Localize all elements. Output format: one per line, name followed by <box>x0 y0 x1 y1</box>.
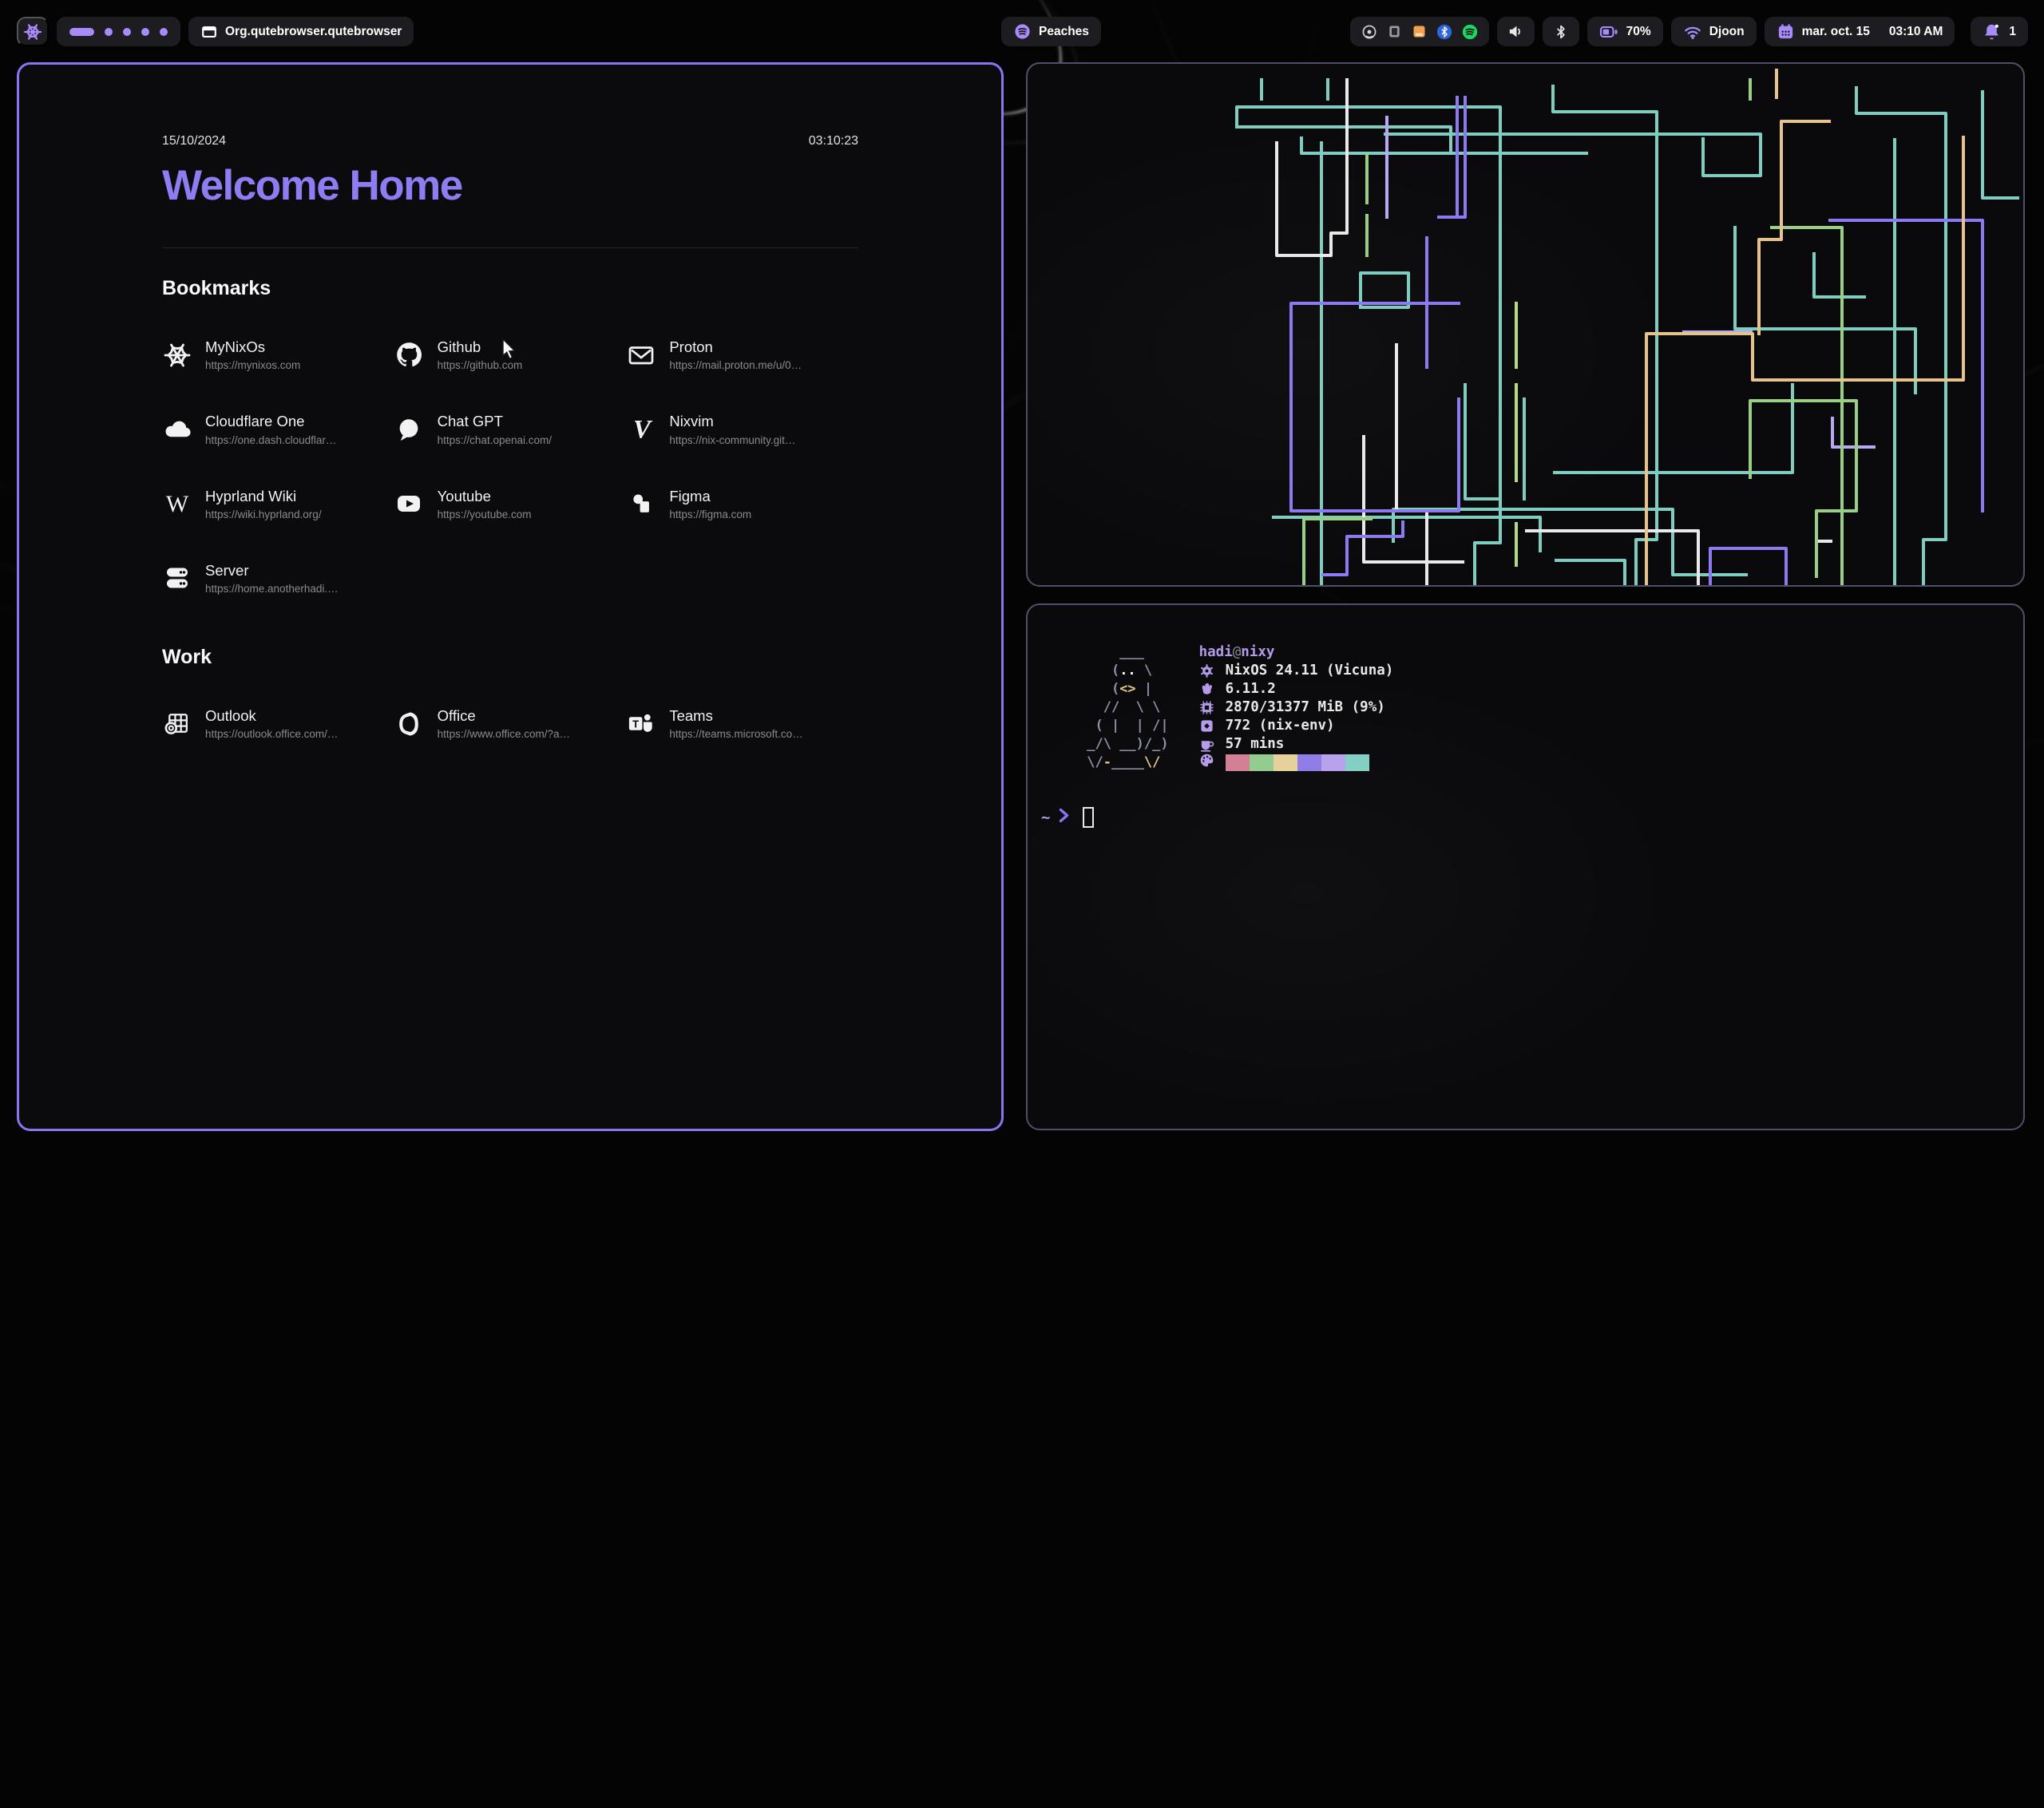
mail-icon <box>626 341 656 370</box>
bookmark-item-chat-gpt[interactable]: Chat GPT https://chat.openai.com/ <box>394 413 627 445</box>
shell-prompt[interactable]: ~ <box>1041 807 2023 828</box>
workspace-indicator-1[interactable] <box>69 28 94 36</box>
server-icon <box>162 563 192 593</box>
color-swatches <box>1226 754 1369 771</box>
palette-swatch <box>1250 754 1274 771</box>
pipe-segment <box>1814 254 1864 297</box>
bookmark-name: Figma <box>669 488 751 504</box>
spotify-tray-icon[interactable] <box>1461 23 1479 41</box>
bookmark-name: Chat GPT <box>438 413 552 429</box>
pipe-segment <box>1856 88 1946 585</box>
section-title-bookmarks: Bookmarks <box>162 277 858 300</box>
media-track-label: Peaches <box>1039 25 1089 39</box>
bookmark-item-office[interactable]: Office https://www.office.com/?a… <box>394 707 627 740</box>
bookmark-url: https://mynixos.com <box>205 359 300 371</box>
pipe-segment <box>1735 227 1915 393</box>
bookmark-name: Office <box>438 707 570 724</box>
fastfetch-output: ___ (.. \ (<> | // \ \ ( | | /| _/\ __)/… <box>1028 605 2023 772</box>
pipe-segment <box>1439 97 1465 217</box>
music-disc-icon <box>1013 22 1032 41</box>
clock-date: mar. oct. 15 <box>1802 25 1870 39</box>
mouse-cursor <box>501 338 521 365</box>
svg-text:W: W <box>165 491 188 517</box>
fastfetch-info: hadi@nixy NixOS 24.11 (Vicuna)6.11.22870… <box>1199 643 1394 772</box>
bookmark-url: https://mail.proton.me/u/0… <box>669 359 802 371</box>
bookmark-item-proton[interactable]: Proton https://mail.proton.me/u/0… <box>626 338 858 371</box>
palette-swatch <box>1274 754 1297 771</box>
bookmark-url: https://teams.microsoft.co… <box>669 728 802 740</box>
nix-icon <box>162 341 192 370</box>
nix-snowflake-icon <box>23 22 42 42</box>
bookmark-name: Teams <box>669 707 802 724</box>
battery-widget[interactable]: 70% <box>1587 17 1663 46</box>
bookmark-name: Proton <box>669 338 802 355</box>
launcher-button[interactable] <box>17 17 49 46</box>
bookmark-url: https://home.anotherhadi.… <box>205 583 339 595</box>
fastfetch-rows: NixOS 24.11 (Vicuna)6.11.22870/31377 MiB… <box>1199 662 1394 754</box>
app-indicator-tray-icon[interactable] <box>1386 23 1403 40</box>
bookmark-url: https://figma.com <box>669 508 751 520</box>
bluetooth-badge-tray-icon[interactable] <box>1436 23 1453 41</box>
wikipedia-icon: W <box>162 489 192 518</box>
pipes-screensaver-art <box>1028 64 2023 585</box>
bookmark-url: https://one.dash.cloudflar… <box>205 434 336 446</box>
pipe-segment <box>1830 220 1983 511</box>
chat-icon <box>394 416 424 443</box>
os-icon <box>1199 663 1214 678</box>
terminal-cursor[interactable] <box>1083 807 1094 828</box>
kernel-icon <box>1199 682 1214 697</box>
section-title-work: Work <box>162 646 858 669</box>
tux-ascii-art: ___ (.. \ (<> | // \ \ ( | | /| _/\ __)/… <box>1079 643 1169 772</box>
svg-text:V: V <box>633 415 653 444</box>
startpage-date: 15/10/2024 <box>162 134 226 148</box>
bookmark-url: https://www.office.com/?a… <box>438 728 570 740</box>
top-bar-left: Org.qutebrowser.qutebrowser <box>17 17 414 46</box>
pipes-terminal-window <box>1026 62 2025 587</box>
github-icon <box>394 341 424 369</box>
top-bar: Org.qutebrowser.qutebrowser Peaches 70% … <box>17 17 2028 46</box>
files-tray-icon[interactable] <box>1411 23 1428 40</box>
bookmark-url: https://wiki.hyprland.org/ <box>205 508 322 520</box>
fastfetch-kernel-row: 6.11.2 <box>1199 680 1394 698</box>
pipe-segment <box>1364 437 1463 562</box>
workspaces-widget[interactable] <box>57 17 180 46</box>
speaker-icon <box>1507 22 1525 41</box>
os-value: NixOS 24.11 (Vicuna) <box>1226 662 1394 680</box>
bookmark-name: MyNixOs <box>205 338 300 355</box>
pipe-segment <box>1710 548 1786 585</box>
bookmark-item-server[interactable]: Server https://home.anotherhadi.… <box>162 562 394 595</box>
fastfetch-uptime-row: 57 mins <box>1199 735 1394 754</box>
screencast-tray-icon[interactable] <box>1361 23 1378 41</box>
outlook-icon <box>162 709 192 738</box>
bookmark-name: Server <box>205 562 339 579</box>
pipe-segment <box>1832 418 1874 447</box>
workspace-indicator-5[interactable] <box>160 28 168 36</box>
office-icon <box>394 710 424 738</box>
divider <box>162 247 858 248</box>
fastfetch-terminal-window: ___ (.. \ (<> | // \ \ ( | | /| _/\ __)/… <box>1026 603 2025 1130</box>
figma-icon <box>626 490 656 517</box>
pipe-segment <box>1301 138 1586 153</box>
pipe-segment <box>1556 560 1625 585</box>
active-window-title: Org.qutebrowser.qutebrowser <box>225 25 402 39</box>
pipe-segment <box>1555 385 1792 473</box>
memory-icon <box>1199 700 1214 715</box>
memory-value: 2870/31377 MiB (9%) <box>1226 698 1385 717</box>
bookmark-url: https://youtube.com <box>438 508 532 520</box>
bookmark-name: Nixvim <box>669 413 795 429</box>
top-bar-right: 70% Djoon mar. oct. 15 03:10 AM 1 <box>1350 17 2028 46</box>
kernel-value: 6.11.2 <box>1226 680 1276 698</box>
palette-swatch <box>1226 754 1250 771</box>
page-title: Welcome Home <box>162 161 858 210</box>
media-player-widget[interactable]: Peaches <box>1001 17 1101 46</box>
pipe-segment <box>1772 227 1842 585</box>
startpage-content: 15/10/2024 03:10:23 Welcome Home Bookmar… <box>162 65 858 740</box>
palette-swatch <box>1321 754 1345 771</box>
active-window-chip[interactable]: Org.qutebrowser.qutebrowser <box>188 17 414 46</box>
window-icon <box>200 23 218 41</box>
uptime-icon <box>1199 737 1214 752</box>
notification-count: 1 <box>2009 25 2016 39</box>
username: hadi <box>1199 644 1233 660</box>
bookmark-item-hyprland-wiki[interactable]: W Hyprland Wiki https://wiki.hyprland.or… <box>162 488 394 520</box>
bluetooth-widget[interactable] <box>1543 17 1579 46</box>
bookmark-grid: MyNixOs https://mynixos.com Github https… <box>162 338 858 595</box>
notifications-widget[interactable]: 1 <box>1971 17 2028 46</box>
wifi-icon <box>1683 22 1702 42</box>
bookmark-item-mynixos[interactable]: MyNixOs https://mynixos.com <box>162 338 394 371</box>
startpage-clock: 03:10:23 <box>809 134 858 148</box>
volume-widget[interactable] <box>1497 17 1535 46</box>
terminal-palette-row <box>1199 754 1394 772</box>
fastfetch-packages-row: 772 (nix-env) <box>1199 717 1394 735</box>
fastfetch-memory-row: 2870/31377 MiB (9%) <box>1199 698 1394 717</box>
pipe-segment <box>1396 345 1427 585</box>
workspace-indicator-3[interactable] <box>123 28 131 36</box>
clock-time: 03:10 AM <box>1889 25 1943 39</box>
qutebrowser-window: 15/10/2024 03:10:23 Welcome Home Bookmar… <box>17 62 1004 1131</box>
prompt-chevron-icon <box>1059 808 1069 827</box>
calendar-icon <box>1777 22 1795 41</box>
bookmark-url: https://outlook.office.com/… <box>205 728 338 740</box>
uptime-value: 57 mins <box>1226 735 1285 754</box>
bookmark-name: Cloudflare One <box>205 413 336 429</box>
pipe-segment <box>1237 127 1451 152</box>
bookmark-item-cloudflare-one[interactable]: Cloudflare One https://one.dash.cloudfla… <box>162 413 394 445</box>
bookmark-name: Outlook <box>205 707 338 724</box>
bookmark-url: https://nix-community.git… <box>669 434 795 446</box>
packages-icon <box>1199 718 1214 734</box>
fastfetch-os-row: NixOS 24.11 (Vicuna) <box>1199 662 1394 680</box>
workspace-indicator-4[interactable] <box>141 28 149 36</box>
youtube-icon <box>394 489 424 518</box>
pipe-segment <box>1291 303 1459 511</box>
prompt-directory: ~ <box>1041 809 1050 826</box>
bookmark-item-youtube[interactable]: Youtube https://youtube.com <box>394 488 627 520</box>
palette-swatch <box>1345 754 1369 771</box>
bookmark-item-outlook[interactable]: Outlook https://outlook.office.com/… <box>162 707 394 740</box>
battery-level: 70% <box>1626 25 1651 39</box>
battery-icon <box>1599 22 1619 42</box>
nixvim-icon: V <box>626 415 656 444</box>
bookmark-item-nixvim[interactable]: V Nixvim https://nix-community.git… <box>626 413 858 445</box>
teams-icon: T <box>626 709 656 738</box>
wifi-ssid: Djoon <box>1709 25 1745 39</box>
cloud-icon <box>162 414 192 444</box>
palette-icon <box>1199 753 1214 773</box>
palette-swatch <box>1297 754 1321 771</box>
user-host-line: hadi@nixy <box>1199 643 1394 662</box>
bookmark-name: Hyprland Wiki <box>205 488 322 504</box>
hostname: nixy <box>1241 644 1274 660</box>
bookmark-url: https://chat.openai.com/ <box>438 434 552 446</box>
system-tray[interactable] <box>1350 17 1489 46</box>
clock-widget[interactable]: mar. oct. 15 03:10 AM <box>1765 17 1955 46</box>
bookmark-grid: Outlook https://outlook.office.com/… Off… <box>162 707 858 740</box>
network-widget[interactable]: Djoon <box>1671 17 1757 46</box>
startpage-header: 15/10/2024 03:10:23 <box>162 134 858 148</box>
svg-text:T: T <box>632 718 639 730</box>
packages-value: 772 (nix-env) <box>1226 717 1335 735</box>
workspace-indicator-2[interactable] <box>105 28 113 36</box>
pipe-segment <box>1393 509 1746 575</box>
pipe-segment <box>1983 92 2018 198</box>
bookmark-item-figma[interactable]: Figma https://figma.com <box>626 488 858 520</box>
bell-icon <box>1983 22 2002 42</box>
pipe-segment <box>1465 385 1500 499</box>
bookmark-item-teams[interactable]: T Teams https://teams.microsoft.co… <box>626 707 858 740</box>
bookmark-name: Youtube <box>438 488 532 504</box>
bluetooth-icon <box>1552 23 1570 41</box>
